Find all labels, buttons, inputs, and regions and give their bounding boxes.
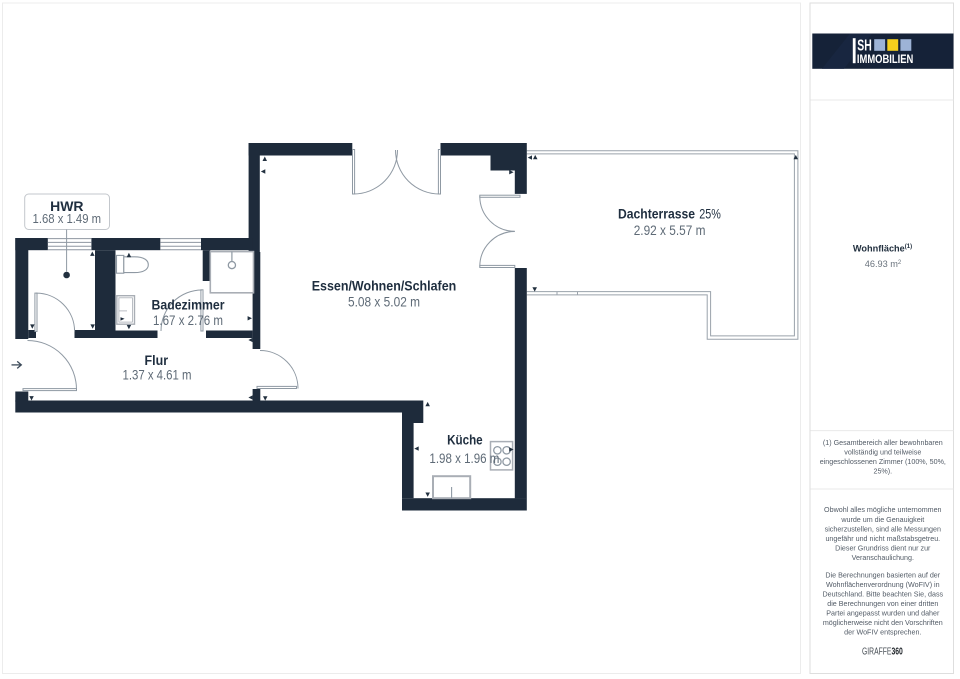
svg-text:möglicherweise nicht den Vorsc: möglicherweise nicht den Vorschriften: [823, 619, 943, 627]
svg-text:die Berechnungen von einer dri: die Berechnungen von einer dritten: [827, 600, 938, 608]
svg-text:1.67 x 2.76 m: 1.67 x 2.76 m: [153, 312, 223, 328]
svg-text:ungefähr und nicht maßstabsget: ungefähr und nicht maßstabsgetreu.: [825, 535, 940, 543]
svg-text:Wohnflächenverordnung (WoFIV): Wohnflächenverordnung (WoFIV) in: [826, 581, 940, 589]
svg-text:5.08 x 5.02 m: 5.08 x 5.02 m: [348, 293, 420, 309]
svg-text:Dieser Grundriss dient nur zur: Dieser Grundriss dient nur zur: [835, 544, 931, 552]
svg-text:Wohnfläche(1): Wohnfläche(1): [853, 243, 912, 253]
svg-text:vollständig und teilweise: vollständig und teilweise: [844, 449, 921, 457]
svg-text:Essen/Wohnen/Schlafen: Essen/Wohnen/Schlafen: [312, 278, 457, 294]
svg-text:1.98 x 1.96 m: 1.98 x 1.96 m: [429, 450, 499, 466]
svg-text:SH: SH: [857, 37, 872, 54]
svg-text:1.37 x 4.61 m: 1.37 x 4.61 m: [123, 366, 192, 382]
svg-text:sicherzustellen, sind alle Mes: sicherzustellen, sind alle Messungen: [825, 525, 941, 533]
svg-text:Partei angepasst wurden und da: Partei angepasst wurden und daher: [826, 610, 940, 618]
svg-text:1.68 x 1.49 m: 1.68 x 1.49 m: [33, 211, 102, 226]
svg-text:eingeschlossenen Zimmer (100%,: eingeschlossenen Zimmer (100%, 50%,: [820, 458, 946, 466]
svg-text:2.92 x 5.57 m: 2.92 x 5.57 m: [634, 222, 706, 238]
svg-text:Obwohl alles mögliche unternom: Obwohl alles mögliche unternommen: [824, 506, 942, 514]
svg-text:25%: 25%: [699, 207, 721, 223]
svg-text:IMMOBILIEN: IMMOBILIEN: [857, 54, 913, 66]
svg-text:Veranschaulichung.: Veranschaulichung.: [852, 554, 914, 562]
svg-text:Deutschland. Bitte beachten Si: Deutschland. Bitte beachten Sie, dass: [822, 591, 943, 599]
svg-text:Küche: Küche: [447, 432, 483, 448]
svg-text:25%).: 25%).: [873, 468, 892, 476]
svg-text:Dachterrasse: Dachterrasse: [618, 207, 695, 223]
svg-text:(1) Gesamtbereich aller bewohn: (1) Gesamtbereich aller bewohnbaren: [823, 439, 943, 447]
svg-text:Die Berechnungen basierten auf: Die Berechnungen basierten auf der: [825, 571, 940, 579]
svg-text:GIRAFFE360: GIRAFFE360: [862, 647, 903, 658]
svg-text:wurde um die Genauigkeit: wurde um die Genauigkeit: [840, 516, 924, 524]
svg-text:der WoFIV entsprechen.: der WoFIV entsprechen.: [844, 629, 921, 637]
svg-text:46.93 m2: 46.93 m2: [865, 259, 902, 269]
